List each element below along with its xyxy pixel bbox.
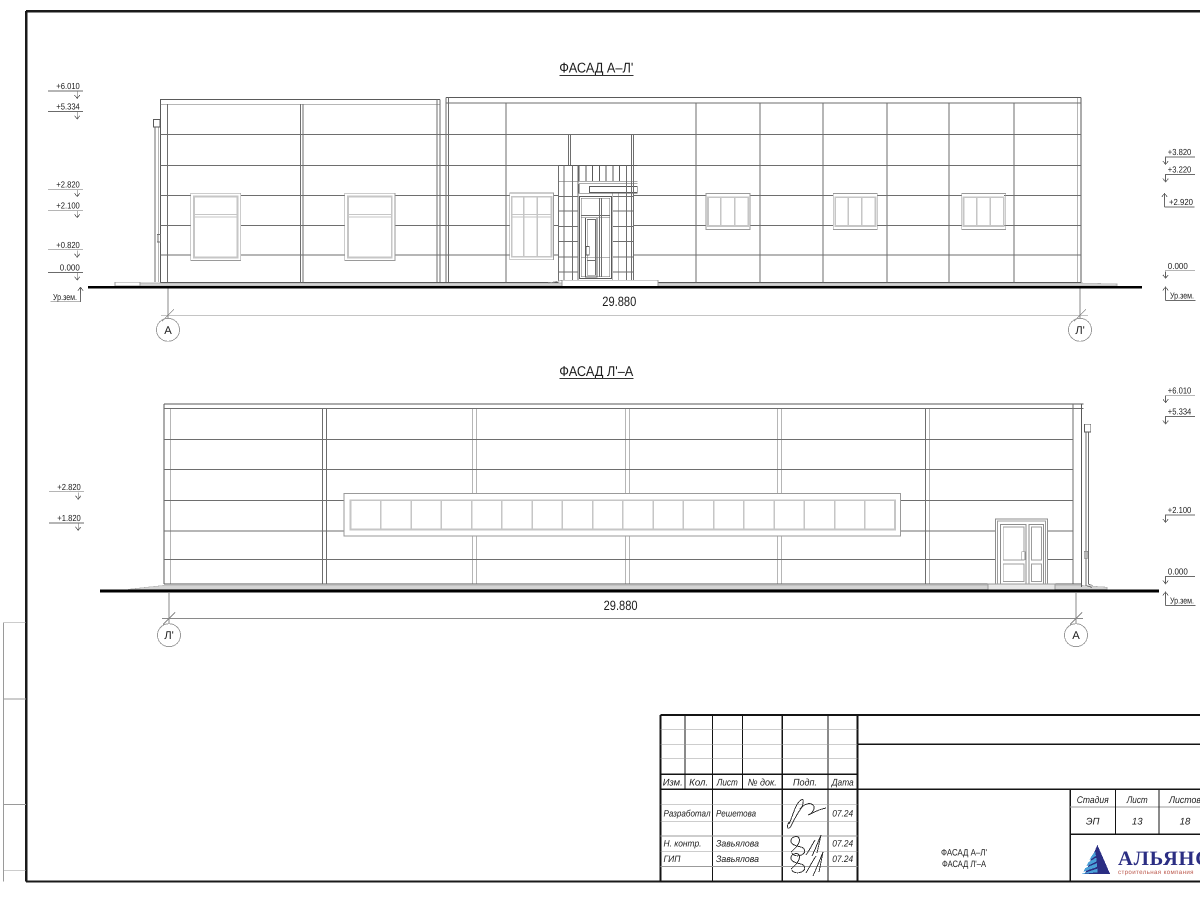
svg-text:29.880: 29.880 — [602, 294, 636, 309]
svg-text:Изм.: Изм. — [663, 778, 683, 789]
svg-text:07.24: 07.24 — [832, 854, 853, 864]
svg-text:Завьялова: Завьялова — [716, 839, 759, 849]
svg-text:+2.100: +2.100 — [1168, 505, 1192, 515]
svg-text:Завьялова: Завьялова — [716, 854, 759, 864]
svg-text:+2.920: +2.920 — [1169, 197, 1193, 207]
svg-text:Дата: Дата — [831, 778, 854, 789]
svg-text:Ур.зем.: Ур.зем. — [1170, 291, 1194, 301]
svg-text:ЭП: ЭП — [1086, 817, 1100, 828]
svg-text:ГИП: ГИП — [664, 854, 681, 864]
svg-text:Стадия: Стадия — [1077, 795, 1109, 806]
svg-text:Разработал: Разработал — [664, 809, 712, 819]
svg-text:Л': Л' — [164, 630, 174, 642]
svg-text:ФАСАД А–Л': ФАСАД А–Л' — [941, 847, 987, 857]
svg-text:29.880: 29.880 — [604, 598, 638, 613]
svg-text:+0.820: +0.820 — [56, 240, 80, 250]
svg-text:+3.220: +3.220 — [1168, 165, 1192, 175]
svg-text:13: 13 — [1132, 817, 1143, 828]
svg-text:18: 18 — [1180, 817, 1191, 828]
svg-text:Н. контр.: Н. контр. — [664, 839, 702, 849]
svg-text:Ур.зем.: Ур.зем. — [53, 292, 77, 302]
svg-text:ФАСАД А–Л': ФАСАД А–Л' — [559, 60, 633, 76]
svg-text:0.000: 0.000 — [1168, 261, 1188, 271]
svg-text:Лист: Лист — [716, 778, 738, 789]
svg-text:Л': Л' — [1075, 325, 1085, 337]
svg-text:ФАСАД Л'–А: ФАСАД Л'–А — [559, 364, 633, 380]
svg-text:+2.820: +2.820 — [57, 482, 81, 492]
svg-text:+2.100: +2.100 — [56, 200, 80, 210]
svg-text:+5.334: +5.334 — [56, 102, 80, 112]
svg-text:+6.010: +6.010 — [56, 81, 80, 91]
svg-text:0.000: 0.000 — [1168, 567, 1188, 577]
svg-text:07.24: 07.24 — [832, 809, 853, 819]
svg-text:АЛЬЯНС: АЛЬЯНС — [1118, 848, 1200, 870]
svg-text:Решетова: Решетова — [716, 809, 756, 819]
svg-text:Ур.зем.: Ур.зем. — [1170, 596, 1194, 606]
svg-text:07.24: 07.24 — [832, 839, 853, 849]
svg-text:А: А — [1072, 630, 1080, 642]
svg-text:+2.820: +2.820 — [56, 179, 80, 189]
svg-text:ФАСАД Л'–А: ФАСАД Л'–А — [942, 859, 987, 869]
svg-text:+5.334: +5.334 — [1168, 407, 1192, 417]
svg-text:0.000: 0.000 — [60, 263, 80, 273]
svg-text:+3.820: +3.820 — [1168, 147, 1192, 157]
svg-text:Подп.: Подп. — [793, 778, 817, 789]
svg-text:№ док.: № док. — [748, 778, 777, 789]
svg-text:Кол.: Кол. — [689, 778, 708, 789]
svg-text:Лист: Лист — [1126, 795, 1148, 806]
svg-text:Листов: Листов — [1168, 795, 1200, 806]
svg-text:строительная компания: строительная компания — [1118, 869, 1194, 876]
svg-text:+6.010: +6.010 — [1168, 385, 1192, 395]
svg-text:+1.820: +1.820 — [57, 513, 81, 523]
svg-text:А: А — [164, 325, 172, 337]
